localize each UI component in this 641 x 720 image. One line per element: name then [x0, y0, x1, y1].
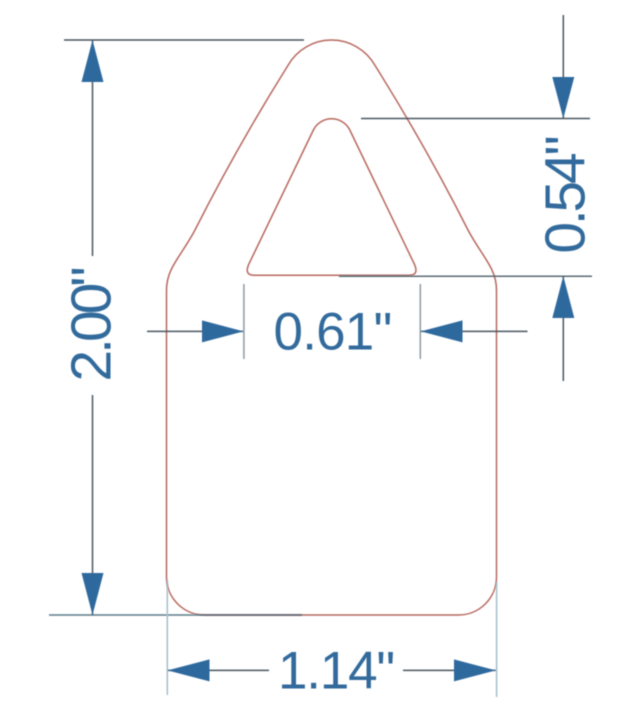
- svg-text:0.54": 0.54": [534, 137, 598, 253]
- svg-text:0.61": 0.61": [274, 303, 392, 362]
- svg-text:1.14": 1.14": [278, 642, 394, 701]
- svg-text:2.00": 2.00": [60, 269, 124, 382]
